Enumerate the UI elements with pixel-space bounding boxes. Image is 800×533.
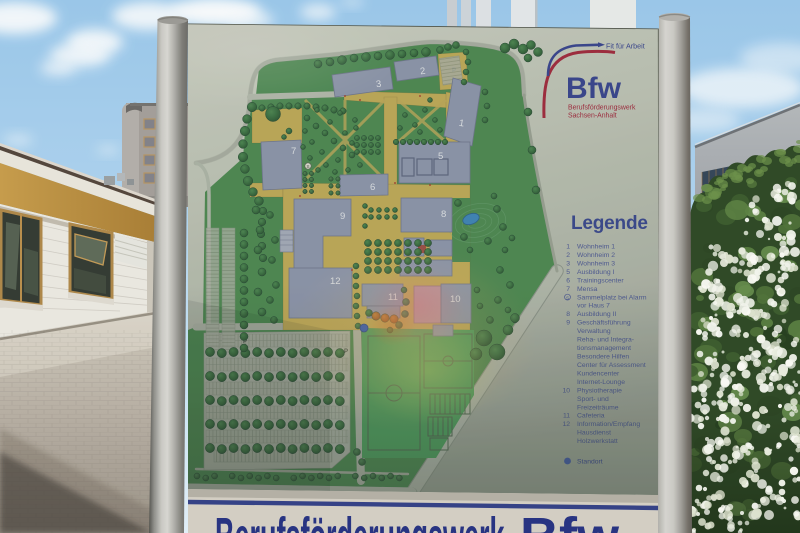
svg-text:Bfw: Bfw	[520, 507, 620, 533]
svg-text:Berufsförderungswerk: Berufsförderungswerk	[215, 507, 505, 533]
